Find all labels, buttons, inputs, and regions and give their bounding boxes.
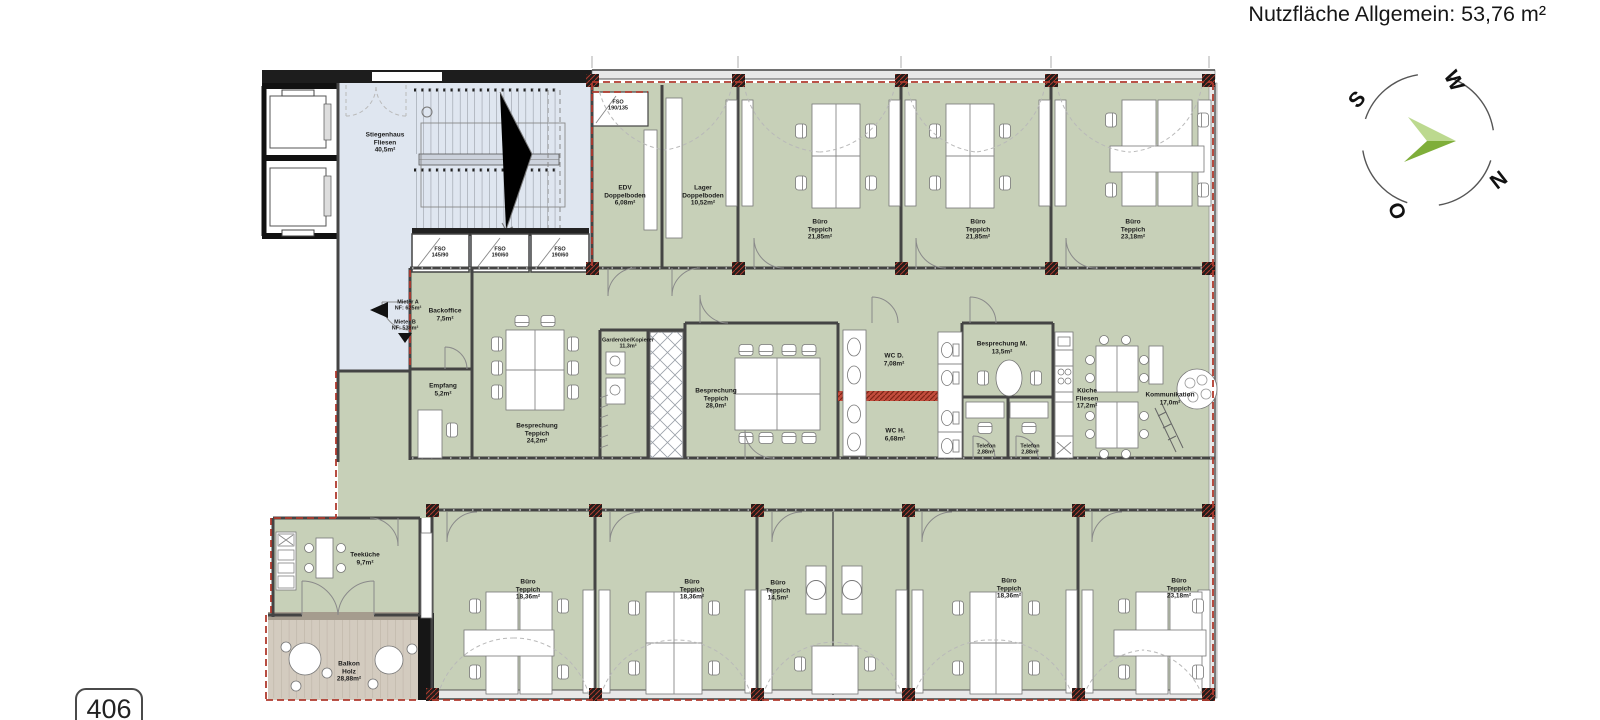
compass-s: S [1344,87,1370,113]
room-label-teekueche: Teeküche9,7m² [350,551,380,566]
floor-plan-graphic: W N O S [0,0,1600,720]
room-label-telefon-1: Telefon2,88m² [976,444,995,457]
floor-plan-canvas: W N O S Nutzfläche Allgemein: 53,76 m² 4… [0,0,1600,720]
marker-label-mieter-b: Mieter BNF: 538m² [392,320,419,333]
room-label-besprechung-c: BesprechungTeppich28,0m² [695,388,737,411]
compass-rose: W N O S [1344,57,1511,223]
room-label-lager: LagerDoppelboden10,52m² [682,185,724,208]
room-label-fso-3: FSO190/60 [552,247,569,260]
room-label-buero-b1: BüroTeppich18,36m² [516,579,540,602]
room-label-empfang: Empfang5,2m² [429,382,457,397]
compass-w: W [1439,67,1469,95]
room-label-buero-b5: BüroTeppich23,18m² [1167,578,1191,601]
compass-arrow-light [1408,117,1456,141]
compass-arrow-dark [1404,141,1456,162]
room-label-balkon: BalkonHolz28,88m² [337,661,361,684]
compass-n: N [1485,165,1511,192]
room-label-besprechung-l: BesprechungTeppich24,2m² [516,423,558,446]
room-label-buero-top-3: BüroTeppich23,18m² [1121,219,1145,242]
elevators [262,86,338,236]
room-label-garderobe: Garderobe/Kopierer11,3m² [602,338,654,351]
room-label-buero-b3: BüroTeppich14,5m² [766,580,790,603]
room-label-stiegenhaus: StiegenhausFliesen40,5m² [366,132,405,155]
room-label-kommunikation: Kommunikation17,0m² [1145,391,1194,406]
room-label-edv: EDVDoppelboden6,08m² [604,185,646,208]
room-label-buero-top-2: BüroTeppich21,85m² [966,219,990,242]
room-label-backoffice: Backoffice7,5m² [429,307,462,322]
room-label-fso-2: FSO190/60 [492,247,509,260]
room-label-besprechung-m: Besprechung M.13,5m² [977,340,1028,355]
room-label-kueche: KücheFliesen17,2m² [1076,388,1098,411]
room-label-telefon-2: Telefon2,88m² [1020,444,1039,457]
room-label-wc-h: WC H.6,68m² [885,427,906,442]
room-label-wc-d: WC D.7,08m² [884,352,905,367]
page-title: Nutzfläche Allgemein: 53,76 m² [1248,2,1546,27]
compass-o: O [1384,199,1411,223]
room-label-buero-b4: BüroTeppich18,36m² [997,578,1021,601]
room-label-buero-top-1: BüroTeppich21,85m² [808,219,832,242]
room-label-fso-1: FSO145/90 [432,247,449,260]
room-label-fso-top: FSO190/135 [608,100,628,113]
marker-label-mieter-a: Mieter ANF: 625m² [395,300,422,313]
sheet-number-badge: 406 [75,688,143,720]
grid-ticks [592,56,1209,68]
room-label-buero-b2: BüroTeppich18,36m² [680,579,704,602]
balcony-terrace [268,612,434,700]
